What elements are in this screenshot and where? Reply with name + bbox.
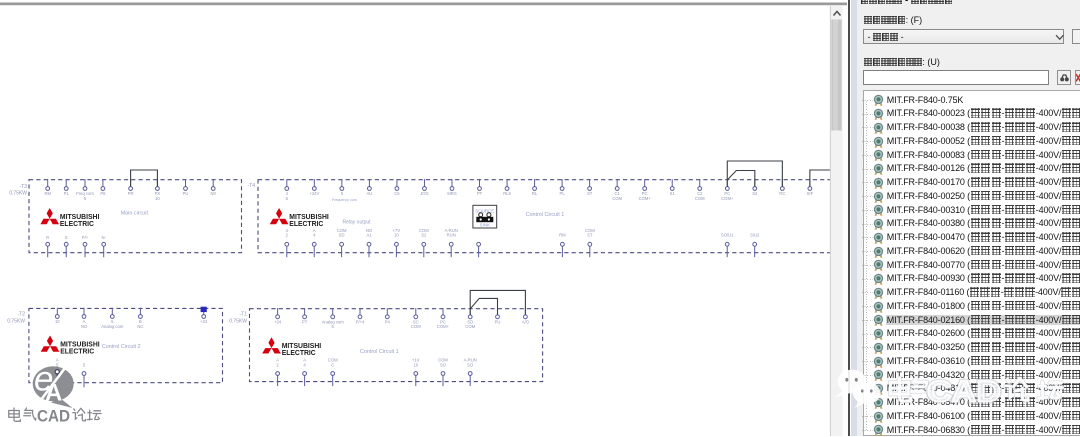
svg-text:10: 10 bbox=[55, 319, 60, 324]
svg-text:4: 4 bbox=[303, 362, 306, 367]
svg-text:CAD: CAD bbox=[37, 408, 70, 426]
svg-text:S1: S1 bbox=[670, 191, 676, 196]
svg-text:A: A bbox=[45, 380, 62, 407]
svg-text:ST: ST bbox=[587, 191, 593, 196]
svg-text:C5: C5 bbox=[394, 191, 400, 196]
svg-text:RL5: RL5 bbox=[503, 191, 511, 196]
svg-text:SO/U1: SO/U1 bbox=[721, 233, 734, 238]
svg-text:R: R bbox=[46, 235, 49, 240]
svg-text:-T3: -T3 bbox=[20, 184, 28, 190]
svg-text:JOG: JOG bbox=[420, 191, 429, 196]
svg-text:C: C bbox=[331, 362, 334, 367]
svg-text:COM: COM bbox=[612, 196, 622, 201]
svg-text:5: 5 bbox=[341, 191, 344, 196]
svg-text:+24: +24 bbox=[274, 320, 282, 325]
svg-text:N0: N0 bbox=[211, 191, 217, 196]
svg-text:4: 4 bbox=[313, 233, 316, 238]
svg-text:S: S bbox=[65, 235, 68, 240]
svg-text:N-: N- bbox=[101, 235, 106, 240]
svg-text:Analog com: Analog com bbox=[101, 324, 124, 329]
svg-text:S2: S2 bbox=[752, 191, 758, 196]
svg-text:SO: SO bbox=[467, 362, 474, 367]
svg-text:-T1: -T1 bbox=[240, 312, 248, 318]
svg-text:Frequency com: Frequency com bbox=[332, 198, 357, 202]
svg-text:ST: ST bbox=[587, 233, 593, 238]
svg-text:5: 5 bbox=[286, 196, 289, 201]
svg-text:SIF: SIF bbox=[807, 191, 814, 196]
svg-text:-T4: -T4 bbox=[248, 183, 256, 189]
svg-text:COM+: COM+ bbox=[437, 324, 450, 329]
svg-text:0.75KW: 0.75KW bbox=[229, 319, 247, 325]
svg-text:PL: PL bbox=[560, 191, 566, 196]
svg-text:COM: COM bbox=[411, 324, 421, 329]
svg-text:A1: A1 bbox=[366, 233, 372, 238]
svg-text:RUN: RUN bbox=[447, 233, 456, 238]
svg-text:2: 2 bbox=[276, 362, 279, 367]
svg-text:0.75KW: 0.75KW bbox=[7, 319, 25, 325]
svg-text:P1: P1 bbox=[64, 191, 70, 196]
svg-text:NC: NC bbox=[137, 324, 143, 329]
svg-text:RM: RM bbox=[559, 233, 566, 238]
svg-text:COM+: COM+ bbox=[721, 196, 734, 201]
svg-text:A/O: A/O bbox=[522, 320, 530, 325]
svg-text:SINK: SINK bbox=[480, 223, 490, 228]
svg-text:RM: RM bbox=[44, 191, 51, 196]
svg-text:5: 5 bbox=[83, 362, 86, 367]
svg-text:SD: SD bbox=[339, 233, 345, 238]
svg-text:RL: RL bbox=[532, 191, 538, 196]
svg-text:S2: S2 bbox=[421, 233, 427, 238]
svg-text:AU: AU bbox=[366, 191, 372, 196]
svg-text:-T2: -T2 bbox=[18, 312, 26, 318]
svg-text:P/+4: P/+4 bbox=[356, 320, 365, 325]
svg-text:PT: PT bbox=[477, 191, 483, 196]
svg-text:+24: +24 bbox=[200, 319, 208, 324]
svg-text:P6: P6 bbox=[100, 191, 106, 196]
svg-text:SOURCE: SOURCE bbox=[475, 208, 494, 213]
svg-text:P/+: P/+ bbox=[82, 235, 89, 240]
svg-text:Control Circuit 1: Control Circuit 1 bbox=[360, 349, 399, 355]
svg-text:COM: COM bbox=[465, 324, 475, 329]
svg-text:10: 10 bbox=[413, 362, 418, 367]
svg-text:NO: NO bbox=[81, 324, 88, 329]
svg-text:PU: PU bbox=[495, 320, 501, 325]
svg-text:MRS: MRS bbox=[447, 191, 457, 196]
svg-text:2: 2 bbox=[286, 233, 289, 238]
svg-text:CAD: CAD bbox=[927, 376, 1001, 409]
svg-text:10: 10 bbox=[394, 233, 399, 238]
svg-text:S/U2: S/U2 bbox=[750, 233, 760, 238]
svg-text:+24V: +24V bbox=[309, 191, 319, 196]
svg-text:PT: PT bbox=[302, 320, 308, 325]
svg-text:COM: COM bbox=[695, 196, 705, 201]
svg-text:5: 5 bbox=[332, 324, 335, 329]
svg-text:SO: SO bbox=[440, 362, 447, 367]
svg-text:RC: RC bbox=[779, 191, 785, 196]
svg-text:Main circuit: Main circuit bbox=[121, 211, 149, 217]
svg-text:10: 10 bbox=[155, 196, 160, 201]
svg-text:Control Circuit 1: Control Circuit 1 bbox=[526, 212, 565, 218]
svg-text:PU: PU bbox=[183, 191, 189, 196]
svg-text:P4: P4 bbox=[385, 320, 391, 325]
svg-text:0.75KW: 0.75KW bbox=[9, 191, 27, 197]
svg-text:COM+: COM+ bbox=[639, 196, 652, 201]
svg-text:PR: PR bbox=[128, 191, 134, 196]
svg-text:Control Circuit 2: Control Circuit 2 bbox=[102, 344, 141, 350]
svg-text:Relay output: Relay output bbox=[343, 220, 372, 226]
svg-text:5: 5 bbox=[84, 196, 87, 201]
